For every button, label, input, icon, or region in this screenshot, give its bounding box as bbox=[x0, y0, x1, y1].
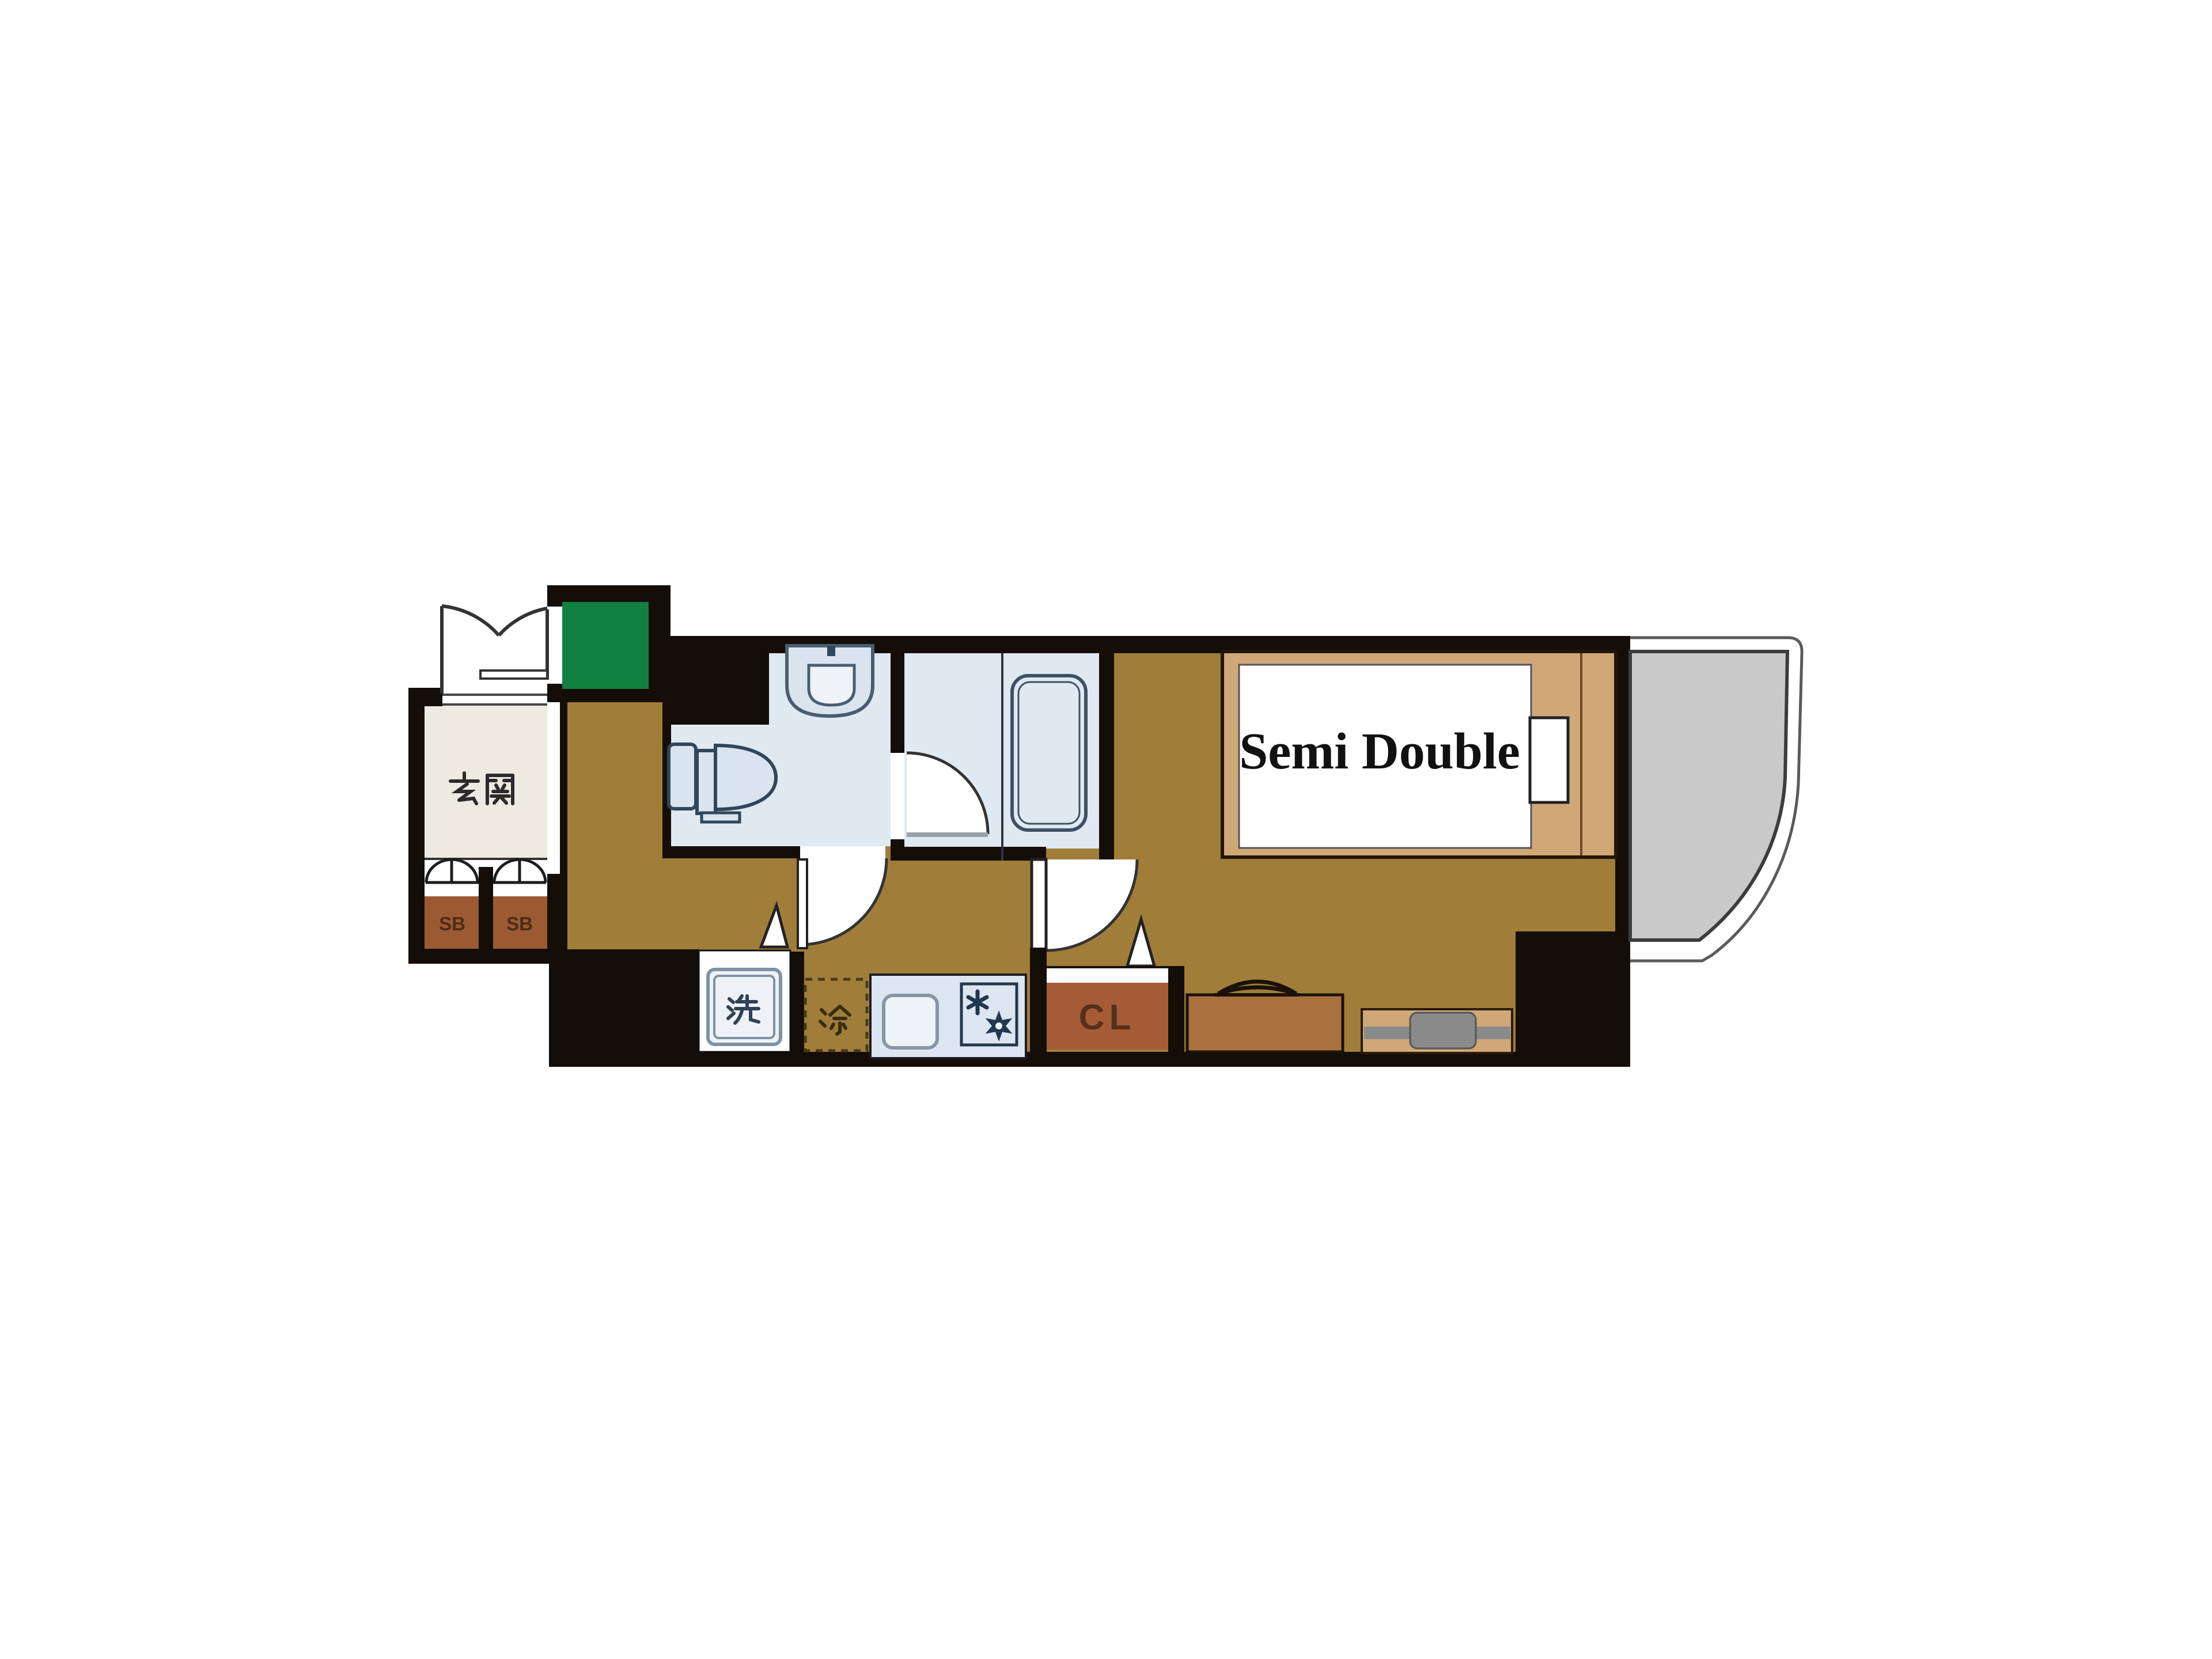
svg-text:CL: CL bbox=[1079, 998, 1136, 1037]
svg-text:SB: SB bbox=[439, 913, 465, 934]
svg-text:SB: SB bbox=[506, 913, 533, 934]
svg-text:Semi Double: Semi Double bbox=[1239, 723, 1520, 780]
